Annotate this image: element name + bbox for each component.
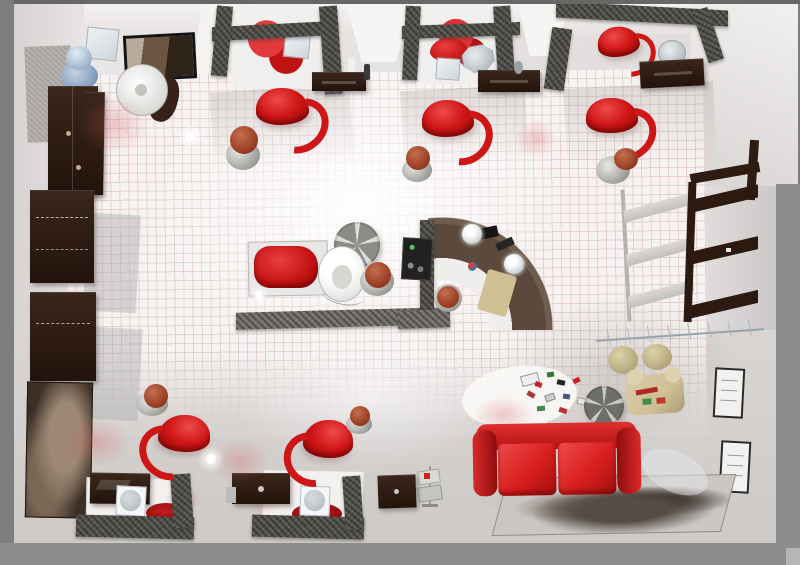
bookshelf-knob	[726, 248, 731, 252]
product-bottle	[348, 57, 355, 72]
wall-frame	[713, 367, 746, 419]
sofa-cushion	[558, 442, 617, 495]
cabinet-drawer-line	[322, 81, 356, 84]
cabinet-knob	[258, 486, 264, 492]
sofa-cushion	[498, 443, 557, 496]
shelf-bottles-row	[36, 249, 88, 252]
stool-top	[406, 146, 430, 170]
shelf-bottles-row	[36, 217, 88, 220]
booth-cabinet	[478, 70, 540, 92]
decor-branch	[596, 322, 764, 348]
ceiling-light-glint	[184, 130, 197, 143]
register-key	[417, 266, 423, 272]
pouf	[642, 344, 672, 370]
product-shelf	[30, 190, 94, 283]
shampoo-bench-red	[254, 246, 318, 288]
rollabout-stool	[596, 146, 640, 184]
rollabout-stool	[402, 146, 436, 182]
frame-corner-chip	[786, 548, 800, 565]
bookshelf-shelf	[690, 236, 758, 265]
magazine-rack	[416, 466, 444, 510]
rollabout-stool	[360, 258, 396, 296]
magazine	[537, 406, 545, 412]
ceiling-light-glint	[204, 452, 218, 466]
magazine	[557, 379, 566, 386]
beige-armchair	[625, 372, 686, 416]
styling-chair-red	[422, 98, 494, 152]
station-partition	[170, 473, 194, 528]
branch-twigs	[600, 318, 761, 345]
wardrobe-split	[72, 87, 73, 195]
armchair-item	[656, 397, 665, 404]
station-mirror	[299, 485, 330, 516]
gray-vase	[514, 61, 523, 74]
desk-lamp	[504, 254, 524, 274]
booth-chair-white	[435, 57, 460, 81]
lattice-bar	[626, 237, 692, 266]
cabinet-drawer-line	[654, 71, 692, 76]
stool-top	[350, 406, 370, 426]
cabinet-drawer-line	[490, 80, 528, 83]
magazine	[558, 407, 567, 414]
shelf-bottles-row	[36, 323, 90, 326]
bookshelf-shelf	[692, 184, 758, 212]
magazine	[534, 381, 542, 388]
viewport-frame-right	[776, 184, 800, 565]
chair-reflection	[210, 438, 270, 484]
sofa-arm	[472, 430, 497, 496]
ceiling-light-glint	[254, 290, 264, 300]
desk-lamp	[462, 224, 482, 244]
reception-base-bar	[398, 309, 451, 329]
wardrobe-knob	[66, 131, 71, 136]
rollabout-stool	[226, 124, 264, 170]
wardrobe-knob	[76, 165, 81, 170]
basin-drain	[135, 84, 147, 96]
viewport-frame-top	[0, 0, 800, 4]
viewport-frame-bottom	[0, 543, 800, 565]
magazine	[547, 372, 555, 378]
right-wall-bookshelf	[686, 182, 760, 322]
armchair-item	[642, 398, 651, 405]
sofa-arm	[616, 428, 641, 494]
station-mirror	[115, 485, 147, 517]
stool-top	[614, 148, 638, 170]
rack-panel	[417, 484, 443, 502]
styling-chair-red	[283, 418, 353, 474]
stool-top	[365, 262, 391, 288]
booth-cabinet	[639, 58, 704, 88]
station-partition	[342, 475, 364, 530]
styling-chair-red	[586, 96, 658, 148]
stool-top	[437, 286, 459, 308]
chair-reflection	[58, 416, 132, 468]
lattice-bar	[624, 193, 690, 222]
styling-chair-red	[138, 413, 210, 467]
rack-magazine-red	[424, 473, 430, 479]
chair-reflection	[78, 96, 150, 154]
stool-top	[144, 384, 168, 408]
water-cooler-bottle	[66, 46, 92, 70]
bookshelf-shelf	[688, 290, 758, 319]
magazine	[526, 390, 535, 398]
rollabout-stool	[136, 382, 174, 416]
magazine	[544, 393, 556, 403]
red-sofa	[472, 422, 641, 505]
round-side-table	[584, 386, 624, 426]
armchair-arm	[664, 366, 681, 383]
station-cabinet	[377, 474, 416, 508]
register-light	[409, 245, 414, 250]
styling-chair-red	[256, 86, 330, 140]
stool-top	[230, 126, 258, 154]
cabinet-knob	[394, 489, 399, 494]
armchair-item	[636, 387, 659, 396]
rack-base	[422, 504, 438, 507]
rollabout-stool	[346, 404, 374, 434]
cabinet-side-metal	[226, 487, 236, 503]
desk-logo-dot	[468, 262, 477, 271]
reception-stool	[434, 282, 464, 312]
register-key	[407, 263, 413, 269]
product-bottle-dark	[364, 64, 370, 80]
armchair-arm	[626, 369, 643, 386]
product-shelf	[30, 292, 96, 381]
cash-register	[401, 237, 433, 281]
salon-3d-render	[0, 0, 800, 565]
viewport-frame-left	[0, 0, 14, 565]
magazine	[563, 394, 571, 400]
chair-reflection	[515, 120, 557, 158]
magazine	[572, 377, 580, 384]
